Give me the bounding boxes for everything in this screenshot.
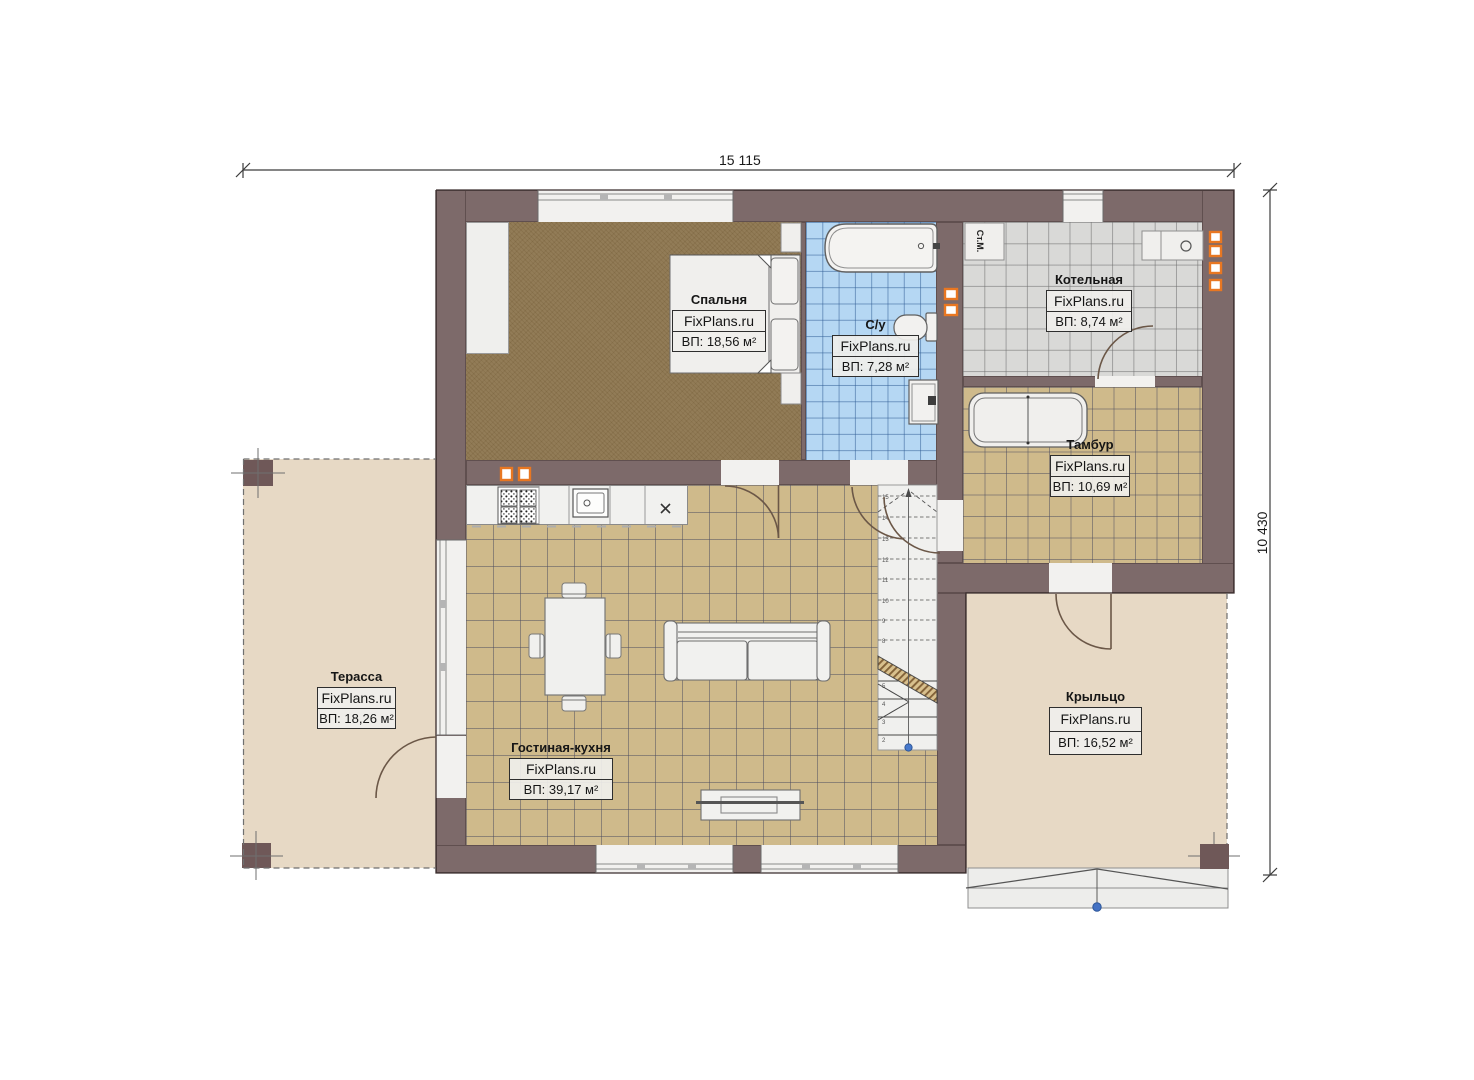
svg-text:10: 10 [882, 599, 889, 605]
svg-text:15: 15 [882, 495, 889, 501]
svg-text:13: 13 [882, 537, 889, 543]
svg-text:12: 12 [882, 558, 889, 564]
svg-text:11: 11 [882, 578, 889, 584]
svg-text:Ст.М.: Ст.М. [975, 230, 985, 253]
